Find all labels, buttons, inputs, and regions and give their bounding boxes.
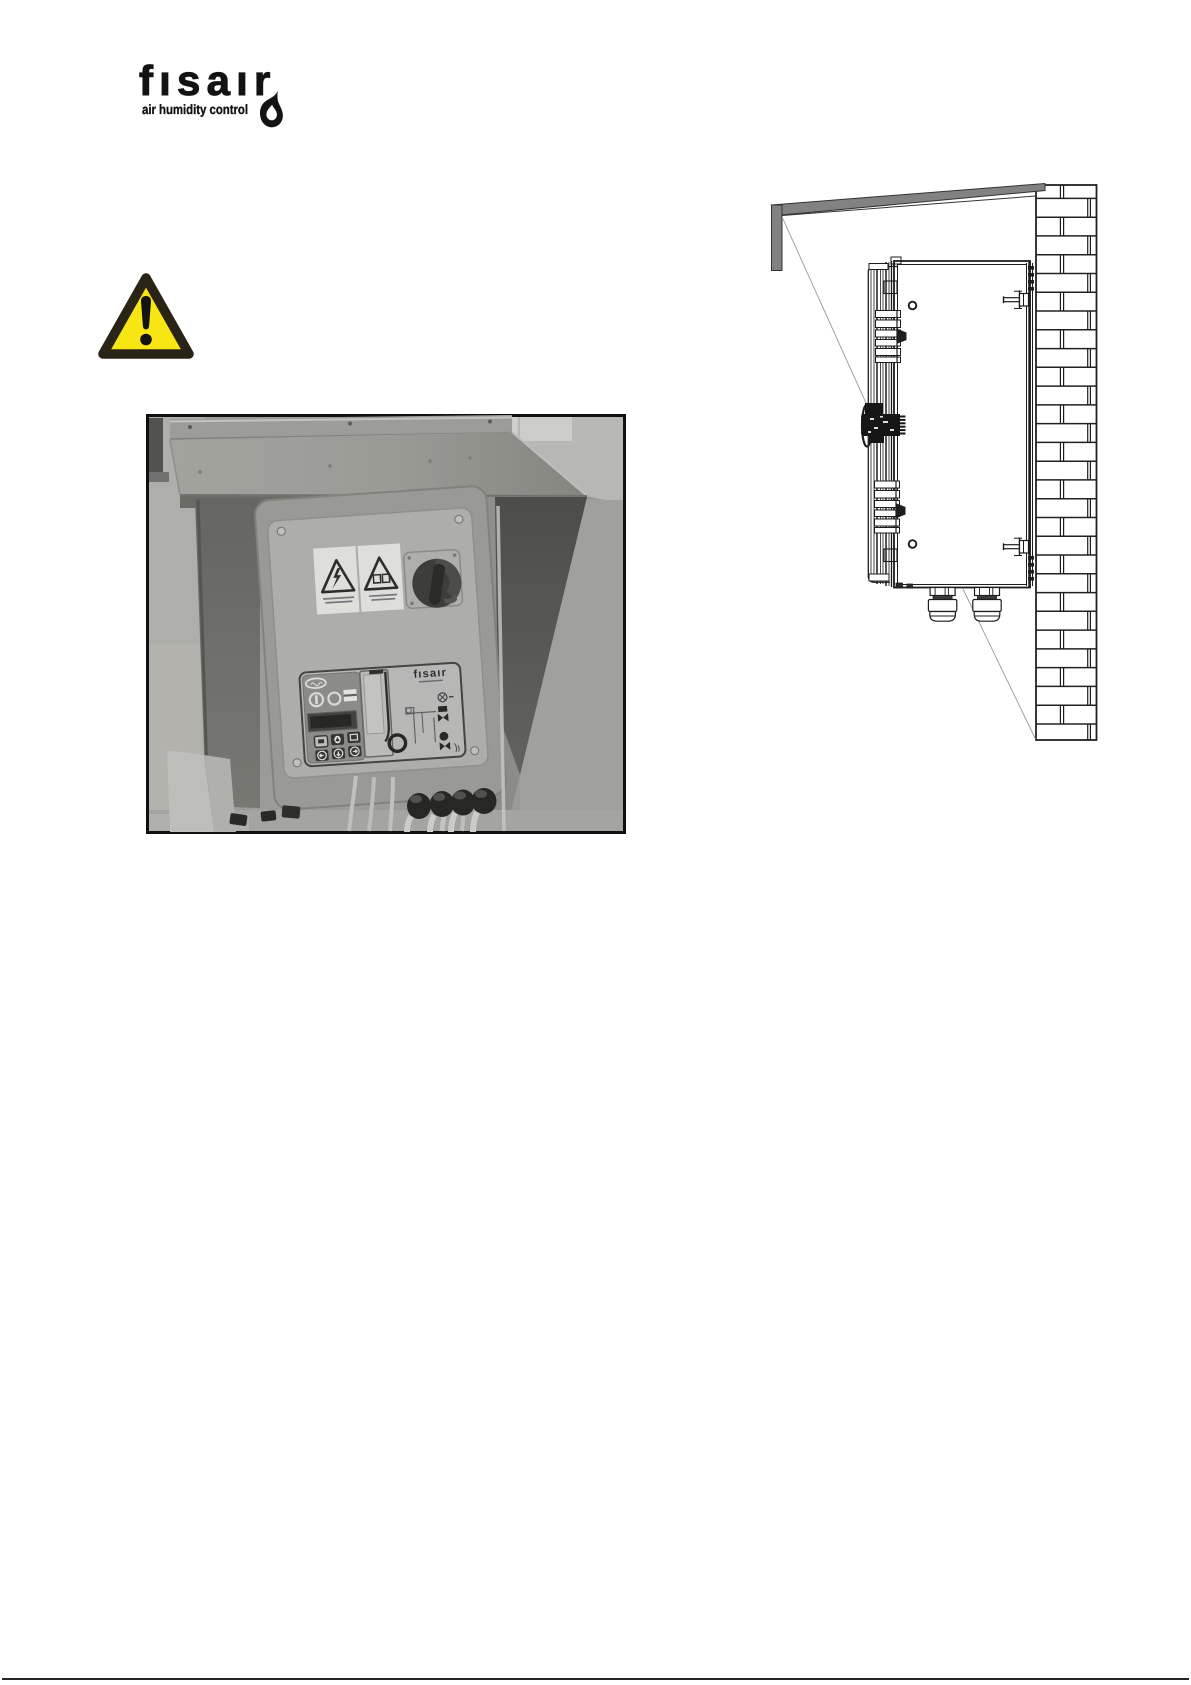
svg-text:fısaır: fısaır: [139, 57, 277, 104]
svg-text:air humidity control: air humidity control: [142, 102, 248, 117]
